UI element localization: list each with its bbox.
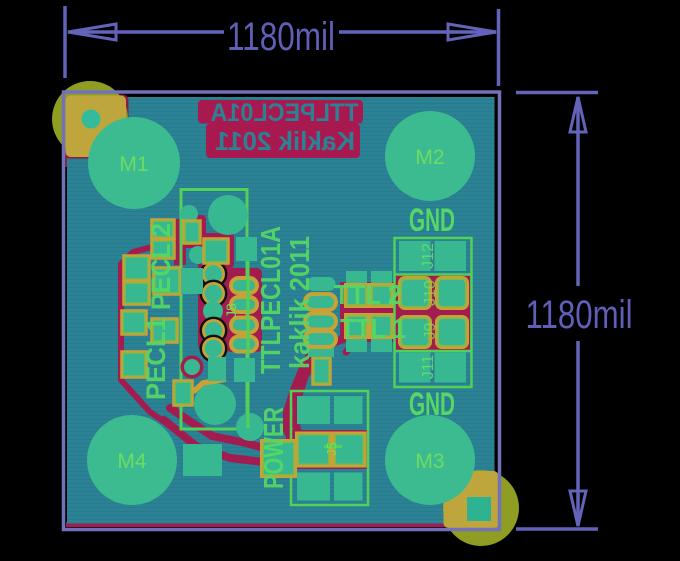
svg-text:J10: J10 bbox=[422, 280, 439, 306]
svg-text:PECL1: PECL1 bbox=[141, 317, 171, 400]
svg-text:J12: J12 bbox=[420, 243, 437, 269]
svg-text:1180mil: 1180mil bbox=[526, 293, 633, 337]
svg-text:kaklik 2011: kaklik 2011 bbox=[284, 236, 315, 369]
svg-text:J9: J9 bbox=[422, 322, 439, 339]
svg-text:TTLPECL01A: TTLPECL01A bbox=[255, 226, 286, 374]
svg-text:J8: J8 bbox=[223, 303, 239, 318]
svg-text:GND: GND bbox=[409, 386, 455, 422]
svg-text:PECL 2: PECL 2 bbox=[146, 223, 176, 310]
svg-text:1180mil: 1180mil bbox=[227, 15, 335, 59]
svg-text:M4: M4 bbox=[117, 450, 146, 473]
svg-text:Kaklik 2011: Kaklik 2011 bbox=[215, 126, 355, 156]
svg-text:POWER: POWER bbox=[258, 407, 289, 489]
svg-text:TTL 2: TTL 2 bbox=[334, 279, 402, 310]
svg-text:M3: M3 bbox=[415, 450, 444, 473]
svg-text:GND: GND bbox=[409, 202, 455, 238]
svg-text:M1: M1 bbox=[119, 153, 148, 176]
svg-text:J11: J11 bbox=[420, 355, 437, 380]
svg-text:TTLPECL01A: TTLPECL01A bbox=[211, 99, 359, 127]
svg-text:J5: J5 bbox=[324, 442, 339, 456]
svg-text:M2: M2 bbox=[415, 146, 444, 169]
svg-text:TTL 1: TTL 1 bbox=[340, 313, 406, 344]
